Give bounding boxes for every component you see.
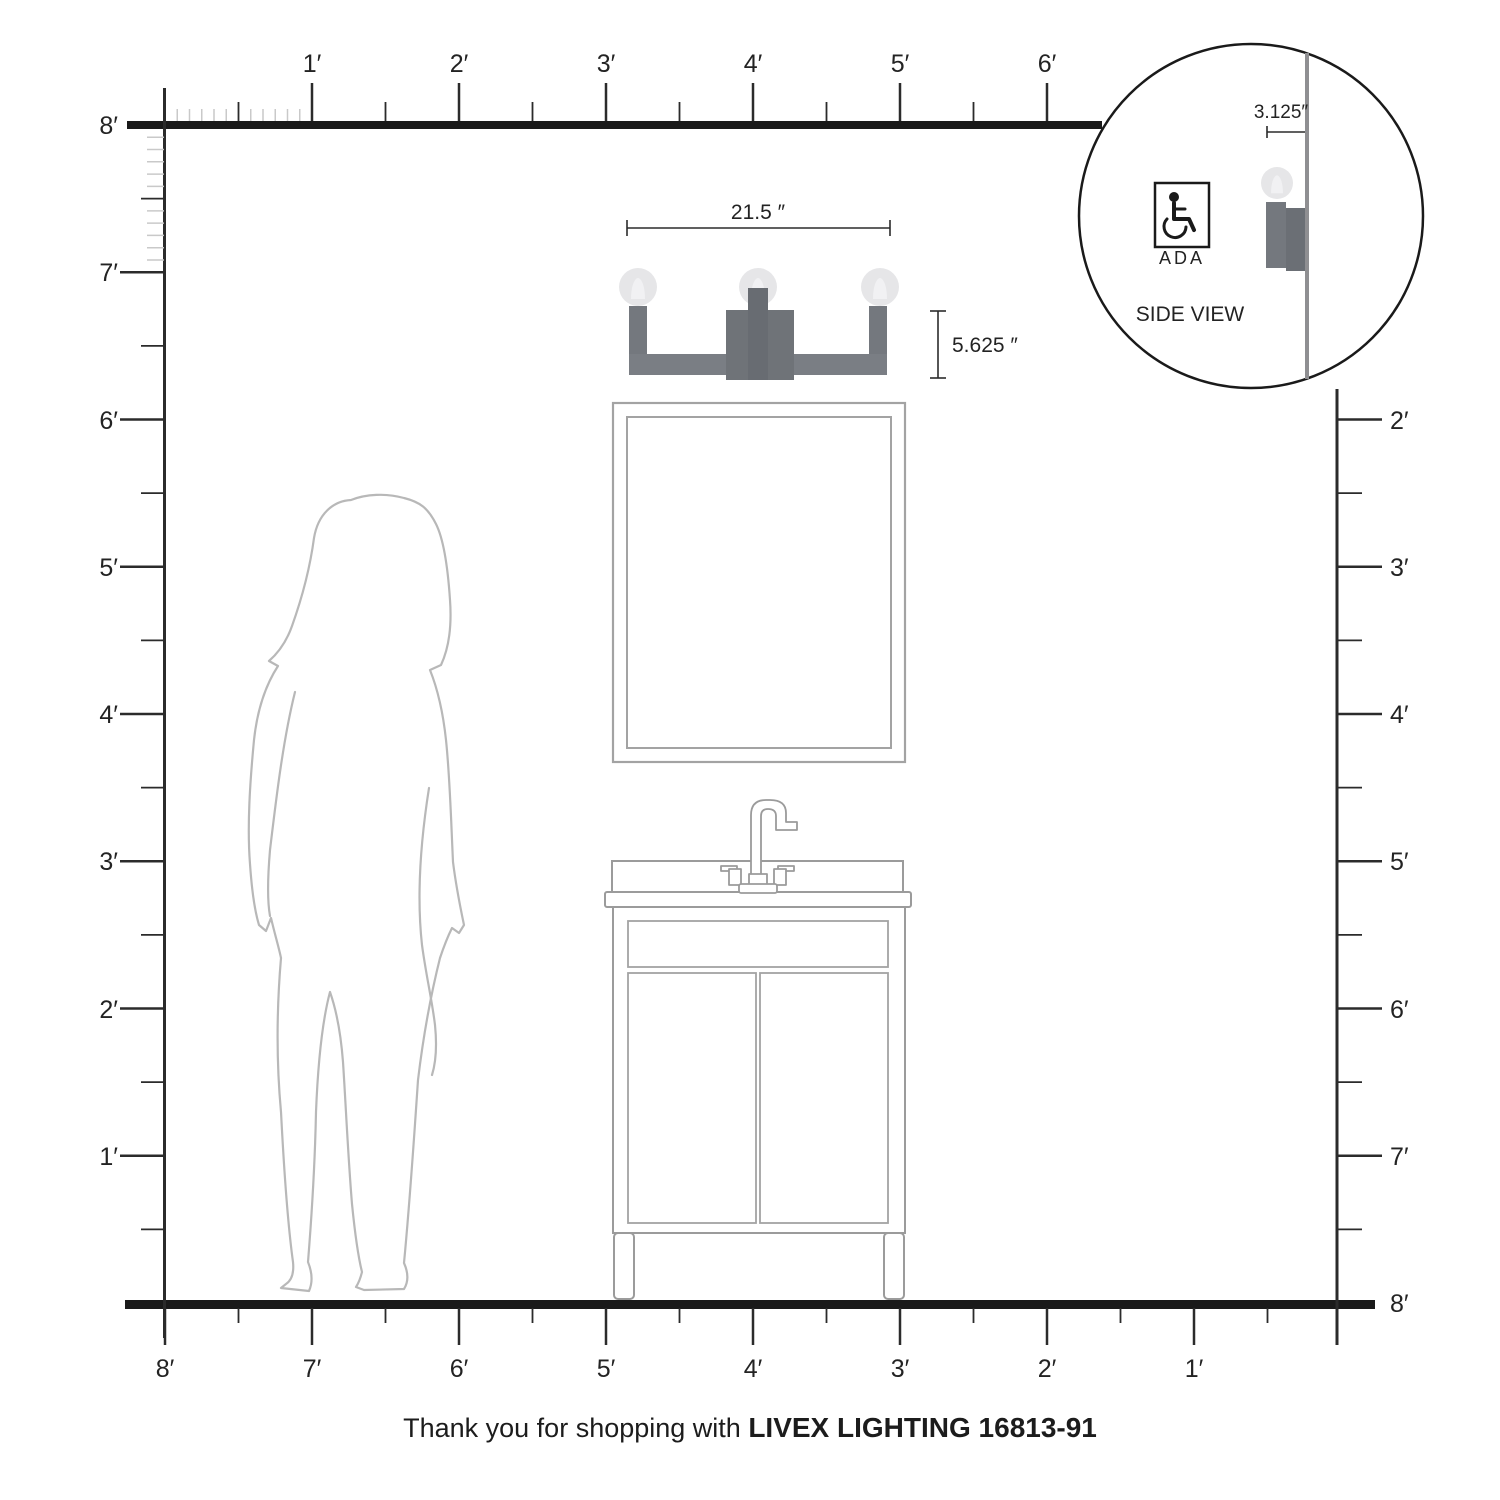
- faucet-right-handle: [774, 869, 786, 885]
- ada-badge: ADA: [1155, 183, 1209, 268]
- dimension-diagram-page: 1′ 2′ 3′ 4′ 5′ 6′ 8′ 7′ 6′ 5′ 4′ 3′ 2′ 1…: [0, 0, 1500, 1500]
- bottom-ruler-label: 3′: [891, 1355, 910, 1383]
- ada-badge-label: ADA: [1159, 248, 1205, 268]
- right-bulb: [861, 268, 899, 306]
- right-ruler-line: [1336, 389, 1339, 1345]
- ceiling-line: [127, 121, 1102, 129]
- footer-prefix: Thank you for shopping with: [403, 1413, 748, 1443]
- faucet-left-handle: [729, 869, 741, 885]
- bottom-ruler-label: 8′: [156, 1355, 175, 1383]
- right-ruler-label: 2′: [1390, 407, 1409, 435]
- top-ruler-label: 6′: [1038, 50, 1057, 78]
- depth-dimension-label: 3.125″: [1254, 102, 1309, 123]
- bottom-ruler-label: 6′: [450, 1355, 469, 1383]
- left-ruler-label: 4′: [99, 701, 118, 729]
- fixture-left-arm: [629, 306, 647, 358]
- left-ruler-label: 7′: [99, 259, 118, 287]
- width-dimension-label: 21.5 ″: [731, 201, 786, 224]
- left-bulb: [619, 268, 657, 306]
- inset-fixture-front: [1266, 202, 1286, 268]
- side-view-inset: 3.125″ ADA SIDE VIEW: [1079, 44, 1423, 388]
- floor-line: [125, 1300, 1375, 1309]
- left-ruler-label: 8′: [99, 112, 118, 140]
- mirror: [613, 403, 905, 762]
- bottom-ruler-label: 4′: [744, 1355, 763, 1383]
- wheelchair-head: [1169, 192, 1179, 202]
- left-ruler-label: 3′: [99, 848, 118, 876]
- inset-fixture-backplate: [1286, 208, 1305, 271]
- mirror-inner-frame: [627, 417, 891, 748]
- vanity-light-fixture: [619, 268, 899, 380]
- right-ruler-label: 8′: [1390, 1290, 1409, 1318]
- vanity-right-door: [760, 973, 888, 1223]
- top-ruler-label: 1′: [303, 50, 322, 78]
- top-ruler-label: 3′: [597, 50, 616, 78]
- left-ruler: 8′ 7′ 6′ 5′ 4′ 3′ 2′ 1′: [99, 112, 118, 1171]
- right-ruler-label: 5′: [1390, 848, 1409, 876]
- vanity-left-leg: [614, 1233, 634, 1299]
- bottom-ruler-label: 1′: [1185, 1355, 1204, 1383]
- fixture-center-stem: [748, 288, 768, 380]
- vanity-right-leg: [884, 1233, 904, 1299]
- width-dimension: 21.5 ″: [627, 201, 890, 236]
- top-ruler-label: 4′: [744, 50, 763, 78]
- vanity-drawer-panel: [628, 921, 888, 967]
- right-ruler-label: 3′: [1390, 554, 1409, 582]
- bottom-ruler-label: 2′: [1038, 1355, 1057, 1383]
- right-ruler-label: 4′: [1390, 701, 1409, 729]
- scale-figure: [249, 495, 464, 1291]
- right-ruler-label: 7′: [1390, 1143, 1409, 1171]
- right-ruler-label: 6′: [1390, 996, 1409, 1024]
- right-ruler-ticks: [1338, 420, 1382, 1230]
- bottom-ruler-ticks: [165, 1308, 1268, 1345]
- top-ruler-label: 2′: [450, 50, 469, 78]
- bottom-ruler-label: 5′: [597, 1355, 616, 1383]
- height-dimension-label: 5.625 ″: [952, 334, 1018, 357]
- left-ruler-label: 1′: [99, 1143, 118, 1171]
- left-ruler-label: 5′: [99, 554, 118, 582]
- vanity-counter-lip: [605, 892, 911, 907]
- top-ruler-ticks: [177, 83, 1047, 121]
- scale-figure-outline: [249, 495, 464, 1291]
- fixture-right-arm: [869, 306, 887, 358]
- bottom-ruler: 8′ 7′ 6′ 5′ 4′ 3′ 2′ 1′: [156, 1355, 1204, 1383]
- vanity-cabinet: [605, 861, 911, 1299]
- right-ruler: 2′ 3′ 4′ 5′ 6′ 7′ 8′: [1390, 407, 1409, 1318]
- left-ruler-ticks: [120, 137, 164, 1229]
- dimension-diagram: 1′ 2′ 3′ 4′ 5′ 6′ 8′ 7′ 6′ 5′ 4′ 3′ 2′ 1…: [0, 0, 1500, 1500]
- faucet: [721, 800, 797, 893]
- side-view-title: SIDE VIEW: [1136, 303, 1245, 326]
- left-ruler-label: 6′: [99, 407, 118, 435]
- vanity-left-door: [628, 973, 756, 1223]
- bottom-ruler-label: 7′: [303, 1355, 322, 1383]
- faucet-base-plate: [739, 884, 777, 893]
- footer-text: Thank you for shopping with LIVEX LIGHTI…: [0, 1412, 1500, 1444]
- left-ruler-label: 2′: [99, 996, 118, 1024]
- top-ruler: 1′ 2′ 3′ 4′ 5′ 6′: [303, 50, 1057, 78]
- height-dimension: 5.625 ″: [930, 311, 1018, 378]
- top-ruler-label: 5′: [891, 50, 910, 78]
- ada-badge-box: [1155, 183, 1209, 247]
- inset-circle: [1079, 44, 1423, 388]
- footer-brand: LIVEX LIGHTING 16813-91: [748, 1412, 1097, 1443]
